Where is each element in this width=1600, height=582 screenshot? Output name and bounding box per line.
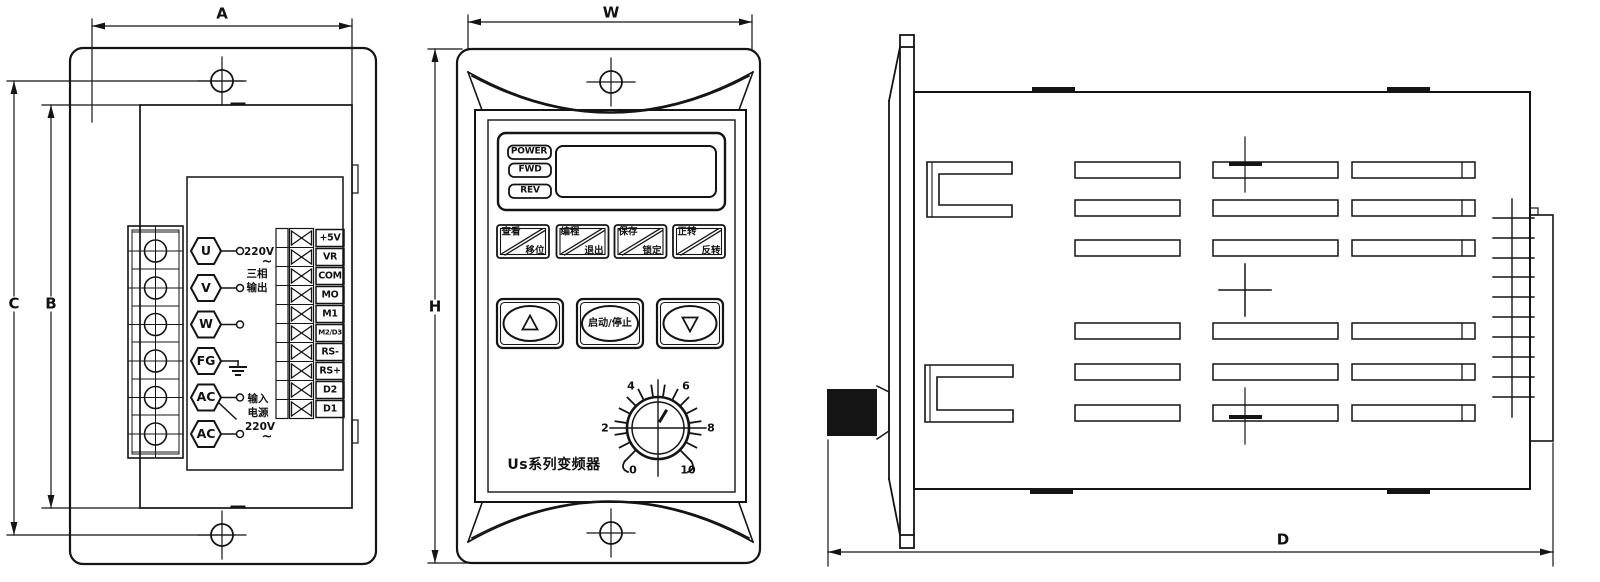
model-name: Us系列变频器 — [507, 458, 600, 472]
input-note-line1: 输入 — [248, 394, 269, 405]
side-clip-top — [352, 165, 358, 193]
knob-pointer — [660, 411, 666, 421]
run-stop-label: 启动/停止 — [588, 319, 632, 329]
dim-label-a: A — [216, 7, 228, 22]
strip-label-rsp: RS+ — [319, 366, 340, 376]
mounting-brackets — [925, 162, 1013, 422]
power-led-label: POWER — [511, 148, 547, 157]
power-terminals — [191, 238, 246, 447]
dim-label-b: B — [42, 297, 59, 312]
strip-label-m2d3: M2/D3 — [318, 330, 342, 337]
strip-label-5v: +5V — [319, 233, 340, 243]
input-tilde: ~ — [262, 431, 273, 444]
terminal-w: W — [199, 318, 213, 331]
ground-symbol — [221, 361, 246, 375]
scale-10: 10 — [680, 465, 695, 476]
terminal-fg: FG — [197, 355, 216, 368]
strip-label-mo: MO — [322, 290, 339, 300]
dim-label-d: D — [1277, 533, 1289, 548]
center-mark — [1219, 264, 1271, 316]
dim-label-c: C — [5, 297, 22, 312]
line-art — [0, 0, 1600, 582]
input-note-line2: 电源 — [248, 408, 269, 419]
strip-label-rsm: RS- — [321, 347, 338, 357]
terminal-block-side — [1530, 208, 1553, 441]
scale-0: 0 — [629, 465, 637, 476]
strip-label-d2: D2 — [323, 385, 337, 395]
strip-label-com: COM — [318, 271, 342, 281]
front-hole-bottom — [587, 509, 635, 557]
key3-bottom-label: 锁定 — [642, 246, 661, 256]
key3-top-label: 保存 — [618, 227, 637, 237]
key1-bottom-label: 移位 — [525, 246, 544, 256]
key-down — [657, 299, 723, 348]
up-arrow-icon — [523, 316, 538, 330]
side-clip-bottom — [352, 420, 358, 443]
rev-led-label: REV — [520, 187, 539, 196]
side-view — [827, 35, 1553, 548]
key4-bottom-label: 反转 — [701, 246, 720, 256]
dim-label-h: H — [426, 300, 445, 315]
down-arrow-icon — [683, 318, 698, 332]
key2-top-label: 编程 — [560, 227, 579, 237]
scale-4: 4 — [627, 381, 635, 392]
strip-label-d1: D1 — [323, 404, 337, 414]
knob-side — [827, 386, 889, 439]
fwd-led-label: FWD — [519, 166, 542, 175]
output-note-line1: 三相 — [247, 269, 268, 280]
speed-knob — [610, 380, 706, 476]
scale-2: 2 — [601, 423, 609, 434]
bottom-registration-mark — [1231, 388, 1260, 444]
dim-label-w: W — [603, 6, 620, 21]
front-view — [457, 49, 760, 563]
terminal-ac1: AC — [197, 391, 216, 404]
scale-6: 6 — [682, 381, 690, 392]
terminal-u: U — [201, 245, 211, 258]
lcd-screen — [556, 146, 716, 197]
output-note-line2: 输出 — [247, 283, 268, 294]
key-up — [497, 299, 563, 348]
strip-label-vr: VR — [323, 252, 337, 262]
strip-label-m1: M1 — [322, 309, 337, 319]
top-registration-mark — [1231, 137, 1260, 192]
scale-8: 8 — [707, 423, 715, 434]
dimension-drawing: A W C B H D U V W FG AC AC 220V ~ 三相 输出 … — [0, 0, 1600, 582]
terminal-pins-side — [1493, 199, 1534, 417]
key2-bottom-label: 退出 — [584, 246, 603, 256]
screw-terminal-block — [128, 226, 183, 458]
dimension-lines — [7, 15, 1553, 566]
key1-top-label: 查看 — [501, 227, 520, 237]
key4-top-label: 正转 — [677, 227, 696, 237]
switch-lever-line — [219, 403, 236, 419]
output-tilde: ~ — [262, 256, 273, 269]
terminal-v: V — [201, 282, 211, 295]
back-view — [70, 48, 376, 564]
terminal-ac2: AC — [197, 428, 216, 441]
front-hole-top — [587, 58, 635, 106]
vent-slots — [1075, 162, 1475, 421]
side-bezel — [889, 35, 914, 548]
